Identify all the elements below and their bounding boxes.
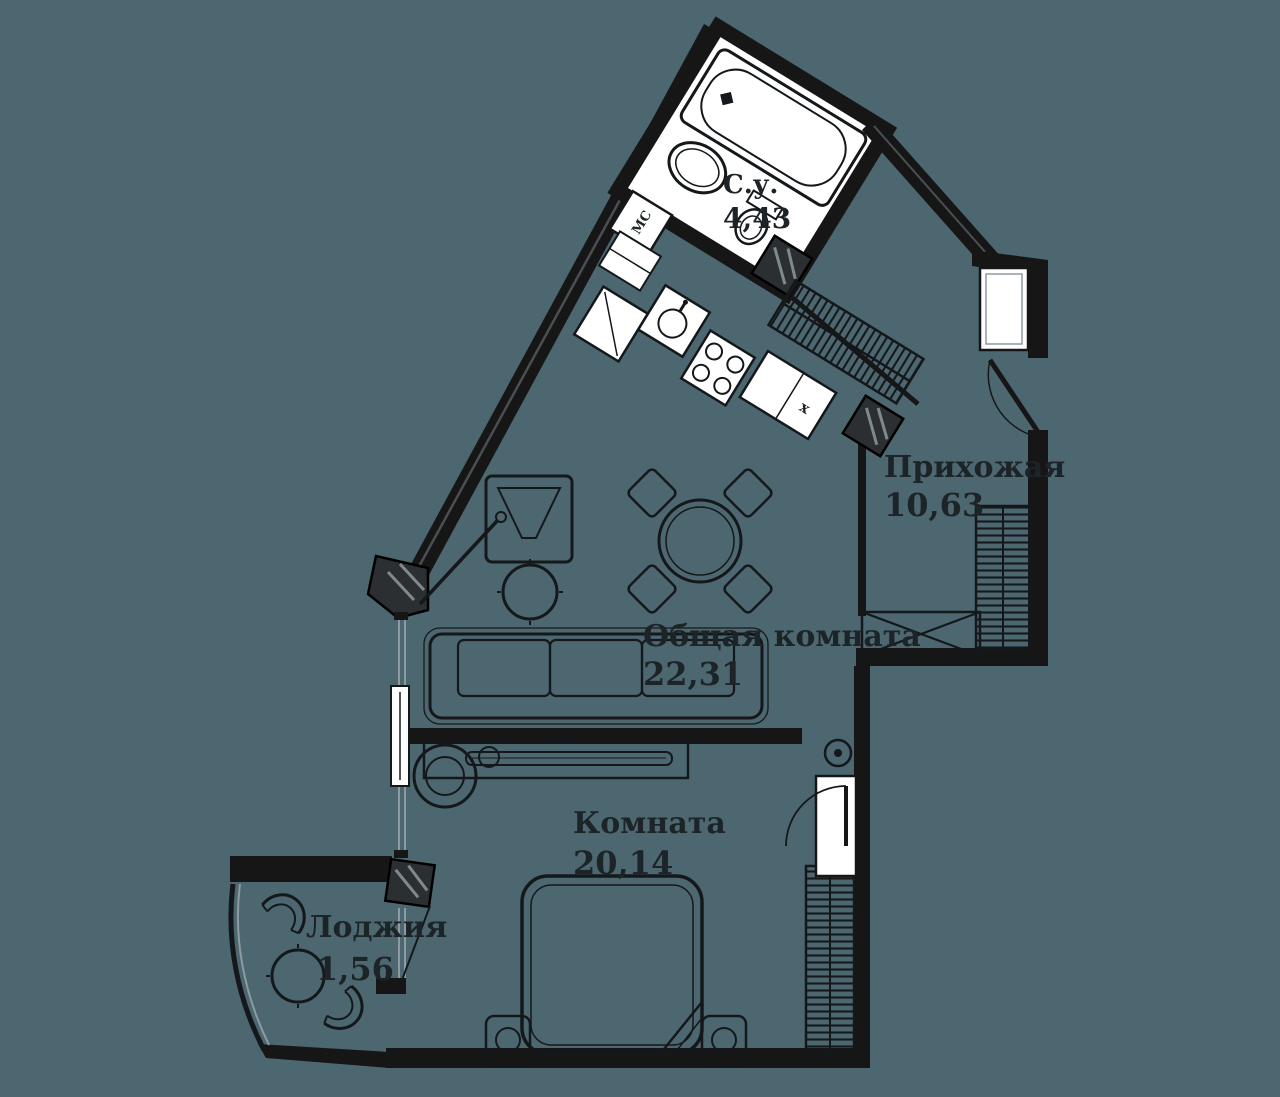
bedroom-name: Комната — [573, 806, 726, 841]
hall-wardrobe — [976, 506, 1030, 650]
hallway-area: 10,63 — [884, 486, 984, 524]
loggia-area: 1,56 — [316, 950, 394, 988]
floor-plan: МС x — [0, 0, 1280, 1097]
hallway-name: Прихожая — [884, 450, 1065, 485]
living-area: 22,31 — [643, 655, 743, 693]
bathroom-name: С.у. — [723, 170, 778, 200]
column-loggia — [385, 859, 434, 907]
wall-bottom — [386, 1048, 870, 1068]
partition-hall-living — [858, 442, 866, 616]
wall-loggia-top — [230, 856, 392, 882]
radiator — [391, 686, 409, 786]
living-name: Общая комната — [643, 619, 921, 654]
entrance-niche — [980, 268, 1028, 350]
bedroom-wardrobe — [806, 866, 854, 1058]
floor-plan-canvas: МС x — [0, 0, 1280, 1097]
loggia-name: Лоджия — [306, 910, 447, 945]
bathroom-area: 4,43 — [723, 202, 791, 235]
niche-right-wall — [1028, 260, 1048, 358]
bedroom-area: 20,14 — [573, 844, 673, 882]
